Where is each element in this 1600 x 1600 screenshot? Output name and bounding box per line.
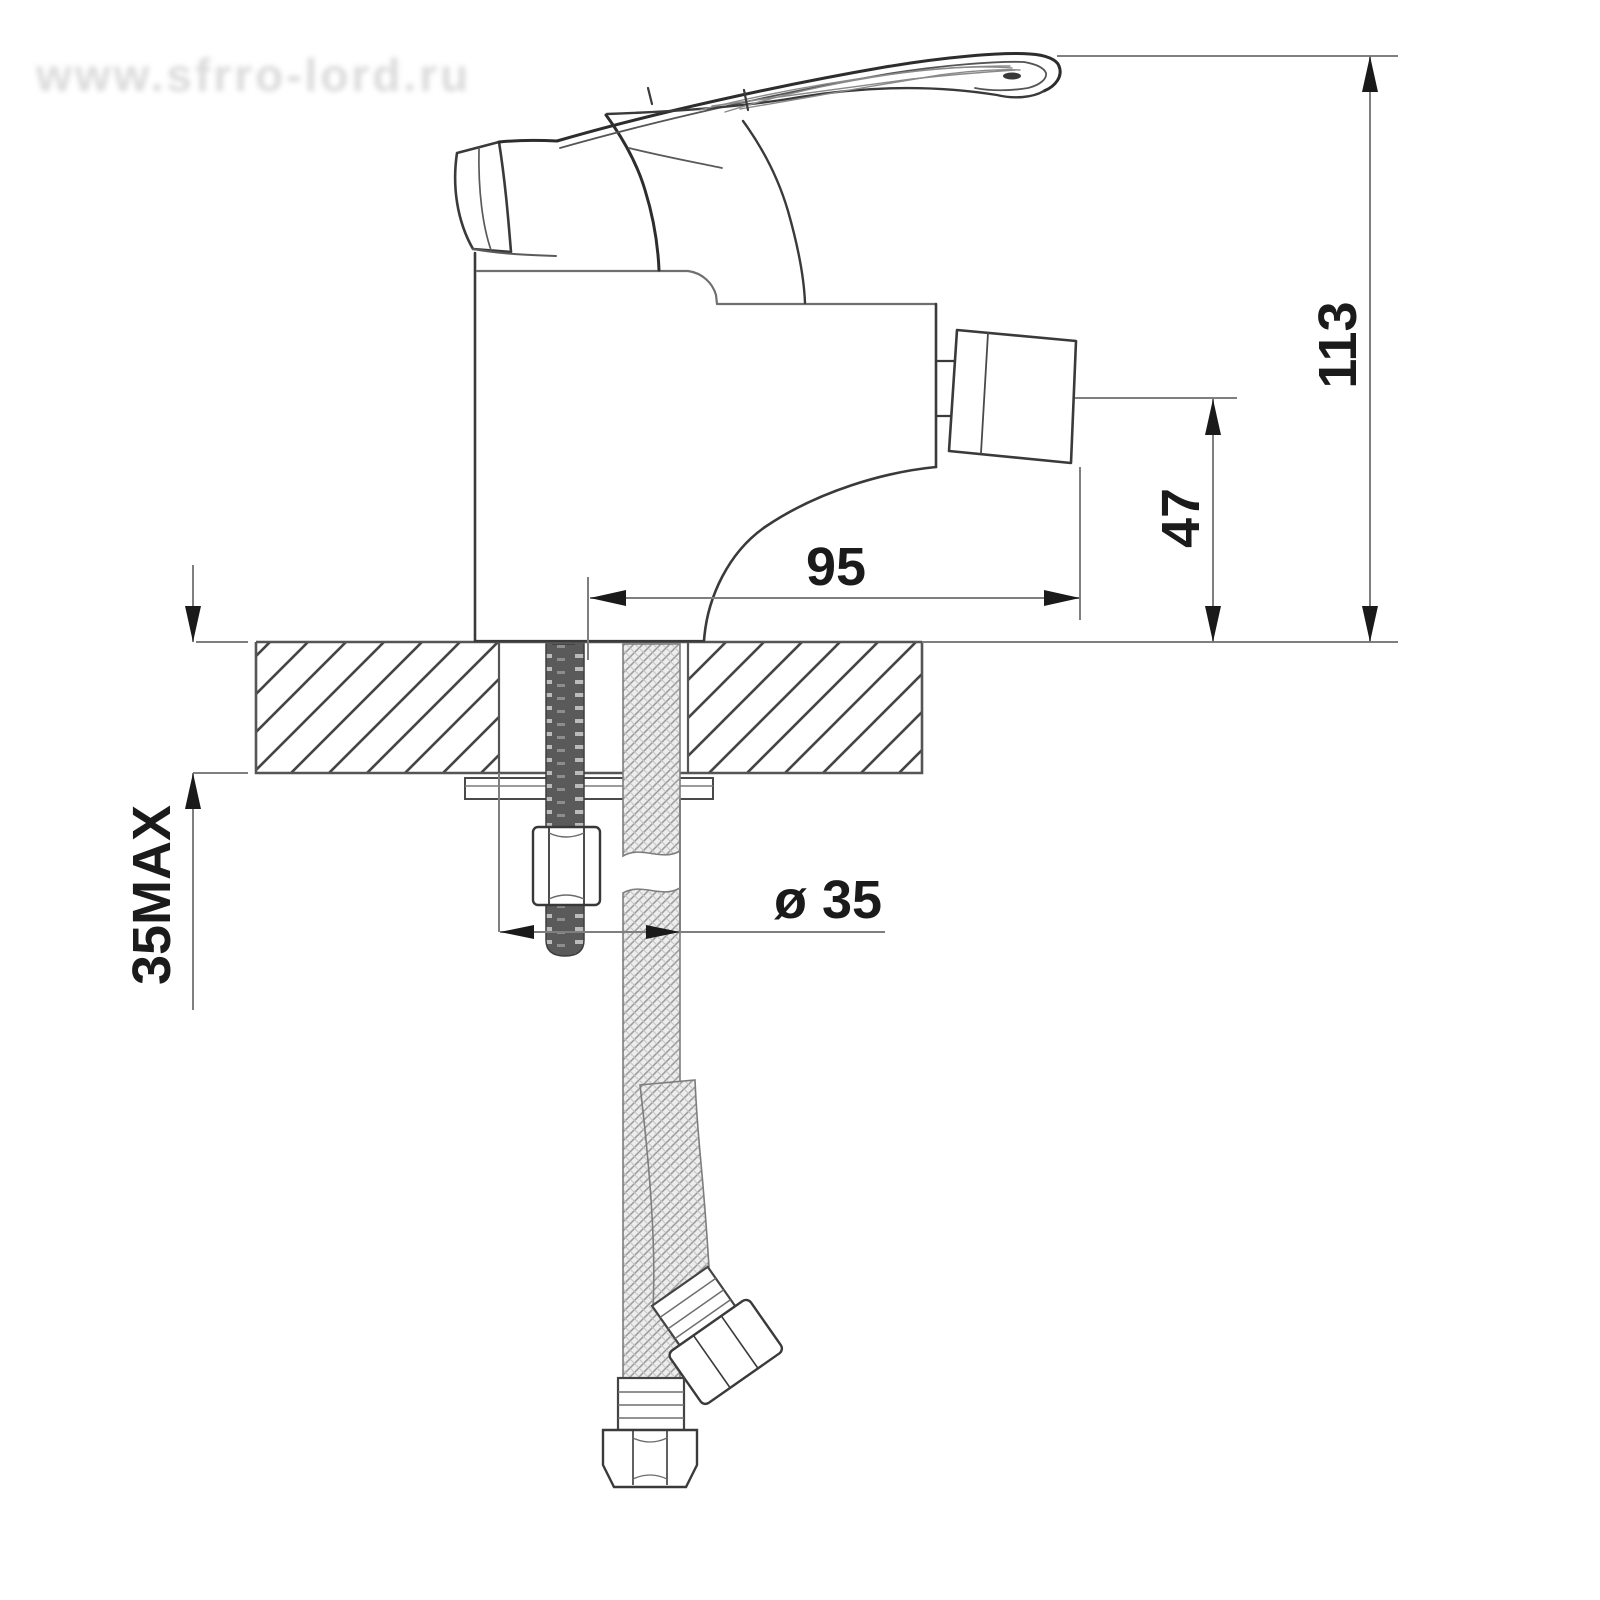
dome-front-arc bbox=[743, 121, 805, 303]
handle-tip-detail bbox=[1003, 73, 1021, 80]
countertop-hatch-right bbox=[688, 642, 922, 773]
handle-underside bbox=[607, 88, 1044, 114]
countertop-section bbox=[256, 642, 922, 773]
dim-35max-label: 35MAX bbox=[122, 805, 182, 985]
dim-dia35-label: ø 35 bbox=[774, 870, 882, 930]
dim-47-label: 47 bbox=[1151, 488, 1211, 548]
dimension-95: 95 bbox=[590, 537, 1080, 606]
hose-nut-vertical bbox=[603, 1430, 697, 1487]
dimension-35max: 35MAX bbox=[122, 565, 201, 1010]
faucet-installation-drawing: 113 47 95 ø 35 bbox=[0, 0, 1600, 1600]
handle-tip bbox=[1044, 66, 1060, 91]
nozzle-block bbox=[949, 330, 1076, 463]
dimension-113: 113 bbox=[1308, 56, 1378, 642]
threaded-stud bbox=[546, 644, 584, 956]
dome-back-arc bbox=[606, 115, 659, 270]
technical-drawing-page: www.sfrro-lord.ru bbox=[0, 0, 1600, 1600]
mounting-nut bbox=[533, 827, 600, 905]
outlet-arm-top bbox=[688, 271, 936, 304]
hose-ferrule-vertical bbox=[618, 1378, 684, 1430]
faucet-body bbox=[455, 54, 1076, 641]
handle-front-cap bbox=[455, 142, 511, 252]
flex-hose-vertical-upper bbox=[623, 644, 680, 856]
extension-lines bbox=[193, 56, 1398, 932]
dim-113-label: 113 bbox=[1308, 301, 1368, 388]
dimensions: 113 47 95 ø 35 bbox=[122, 56, 1398, 1010]
aerator-nozzle bbox=[936, 330, 1076, 463]
dome-seam bbox=[629, 148, 722, 168]
cap-bottom-line bbox=[473, 249, 556, 256]
dim-95-label: 95 bbox=[806, 537, 866, 597]
dimension-47: 47 bbox=[1151, 399, 1221, 642]
hose-end-vertical bbox=[603, 1378, 697, 1487]
lever-handle bbox=[499, 54, 1060, 148]
countertop-hatch-left bbox=[256, 642, 499, 773]
